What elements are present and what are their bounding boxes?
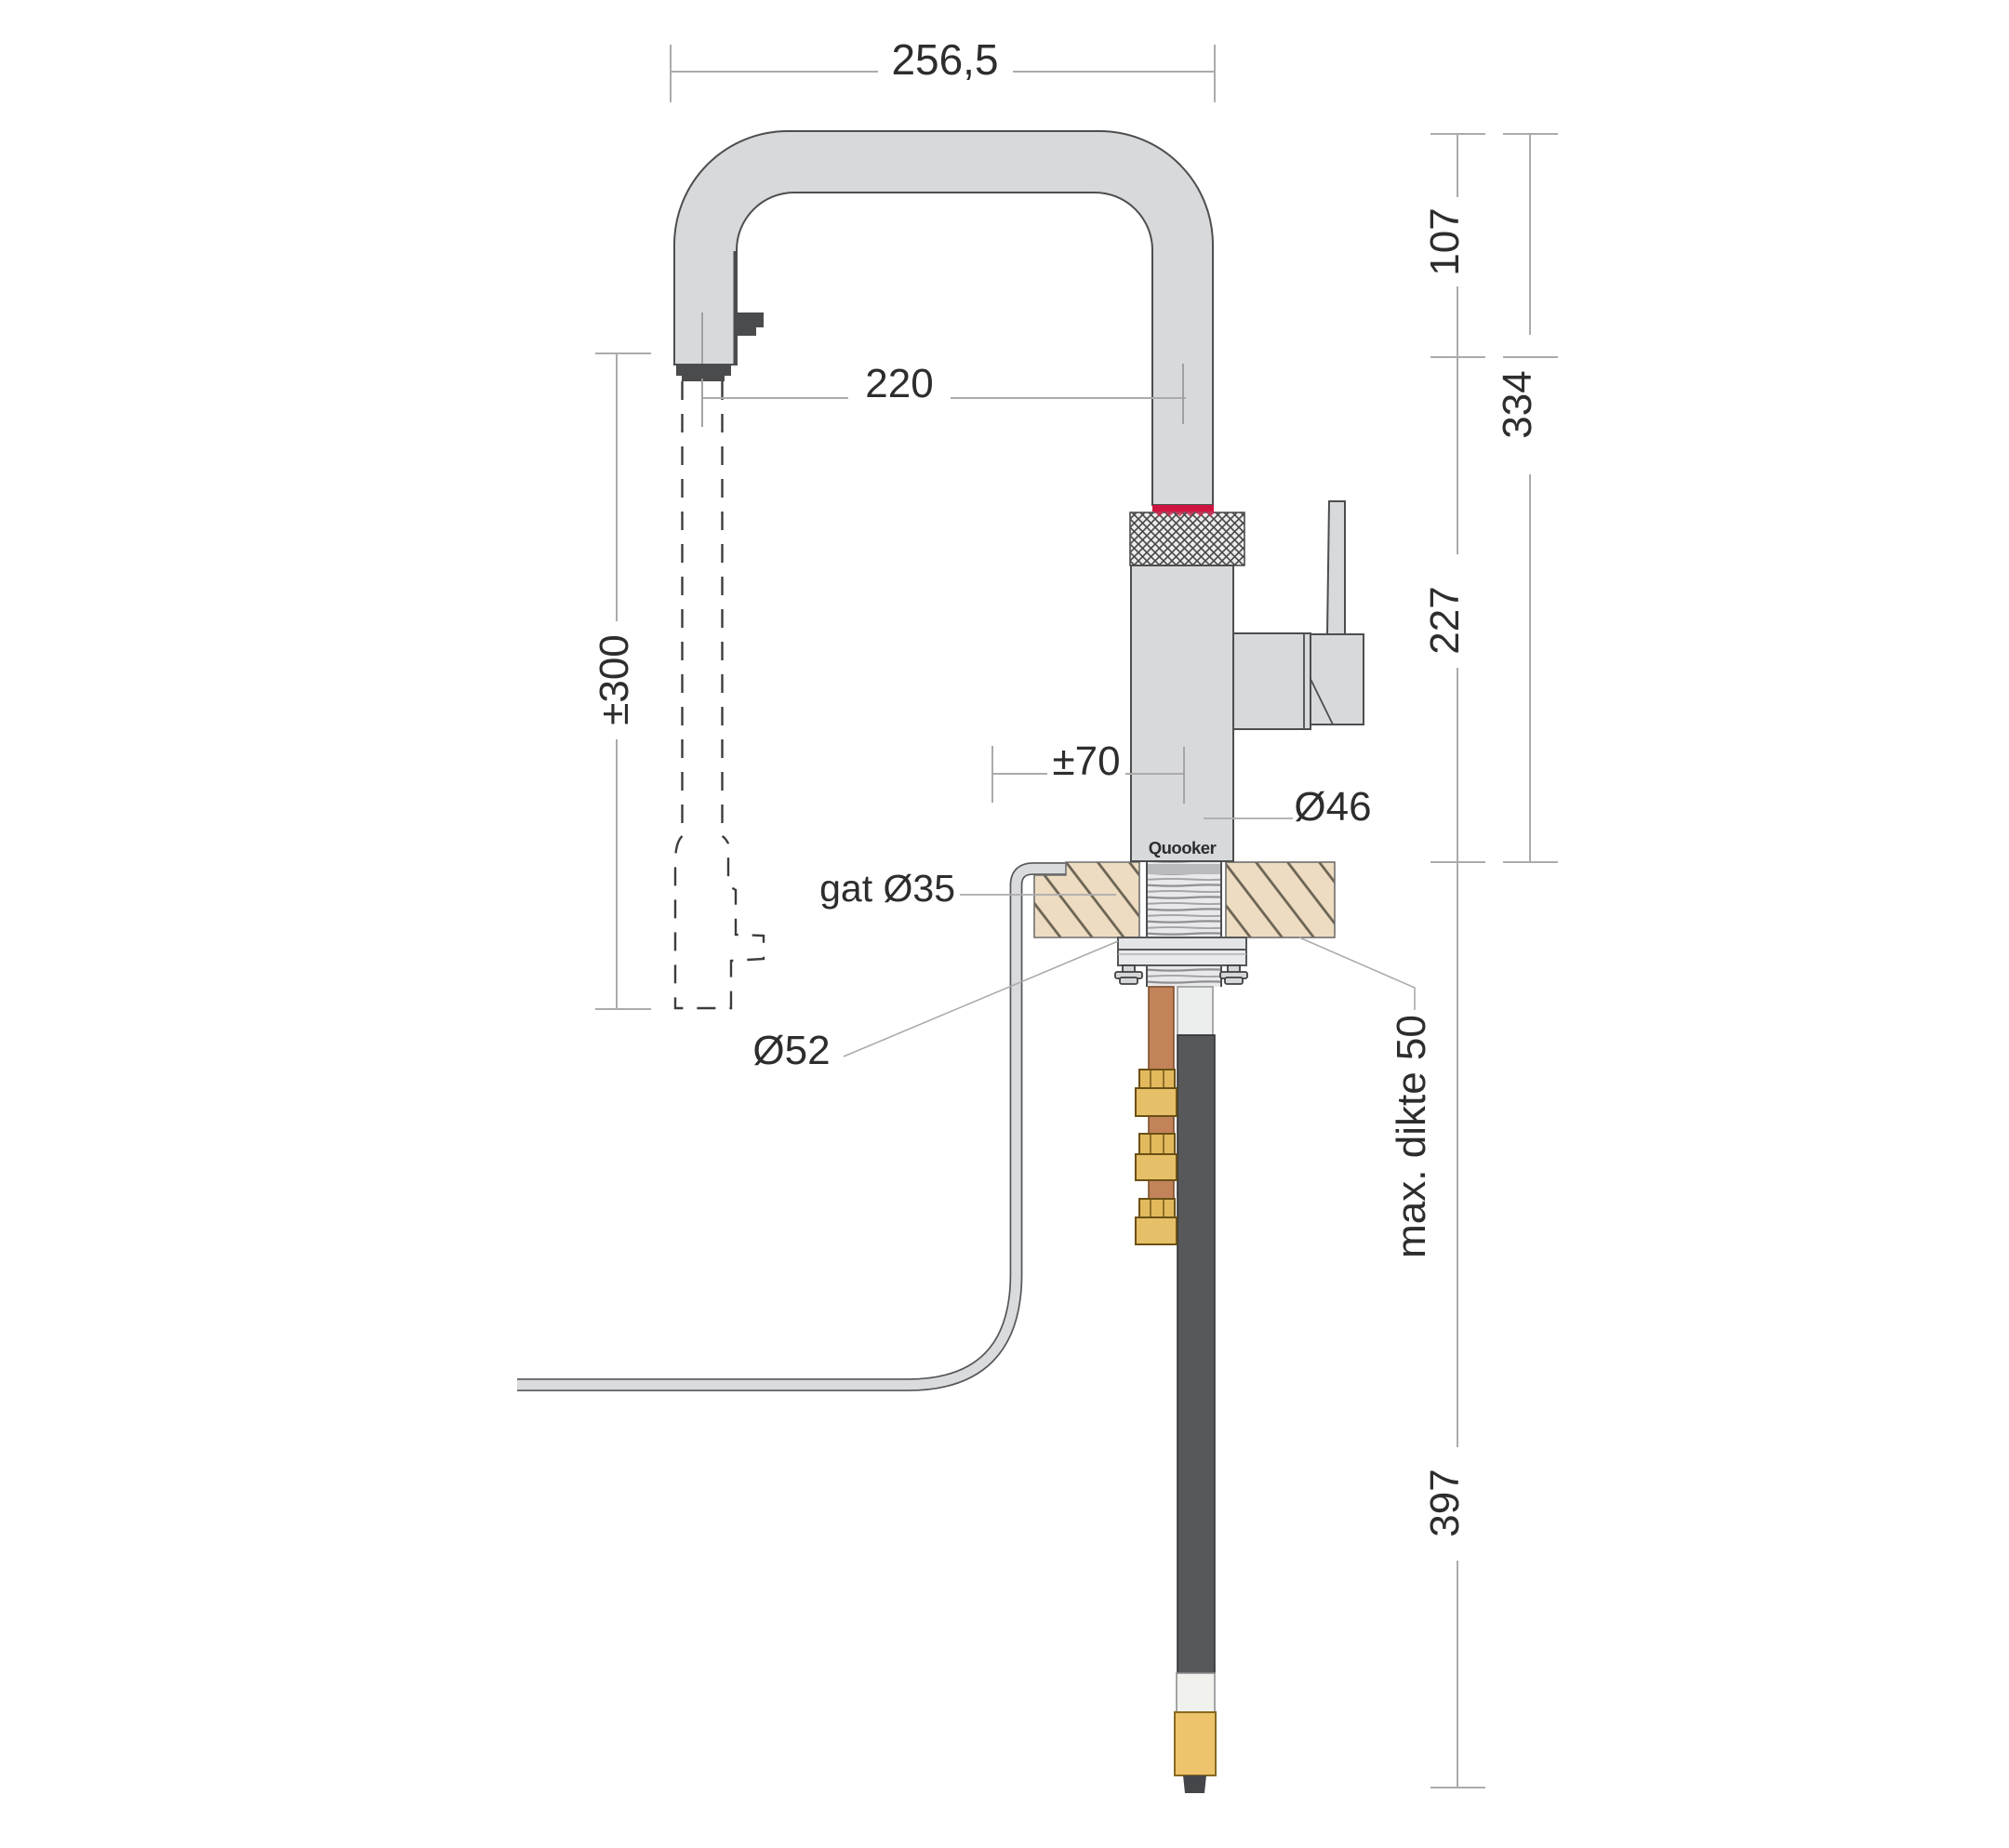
svg-text:Ø46: Ø46 <box>1294 784 1371 830</box>
svg-text:max. dikte 50: max. dikte 50 <box>1389 1015 1434 1258</box>
svg-text:gat Ø35: gat Ø35 <box>819 867 955 910</box>
svg-text:227: 227 <box>1422 586 1468 654</box>
svg-text:±300: ±300 <box>592 634 637 725</box>
svg-text:±70: ±70 <box>1052 738 1120 784</box>
svg-text:107: 107 <box>1422 207 1468 275</box>
svg-text:256,5: 256,5 <box>891 35 998 84</box>
svg-text:397: 397 <box>1422 1469 1468 1536</box>
svg-text:Ø52: Ø52 <box>752 1028 830 1073</box>
svg-text:334: 334 <box>1495 370 1540 438</box>
svg-text:Quooker: Quooker <box>1149 838 1217 858</box>
svg-text:220: 220 <box>865 361 933 406</box>
